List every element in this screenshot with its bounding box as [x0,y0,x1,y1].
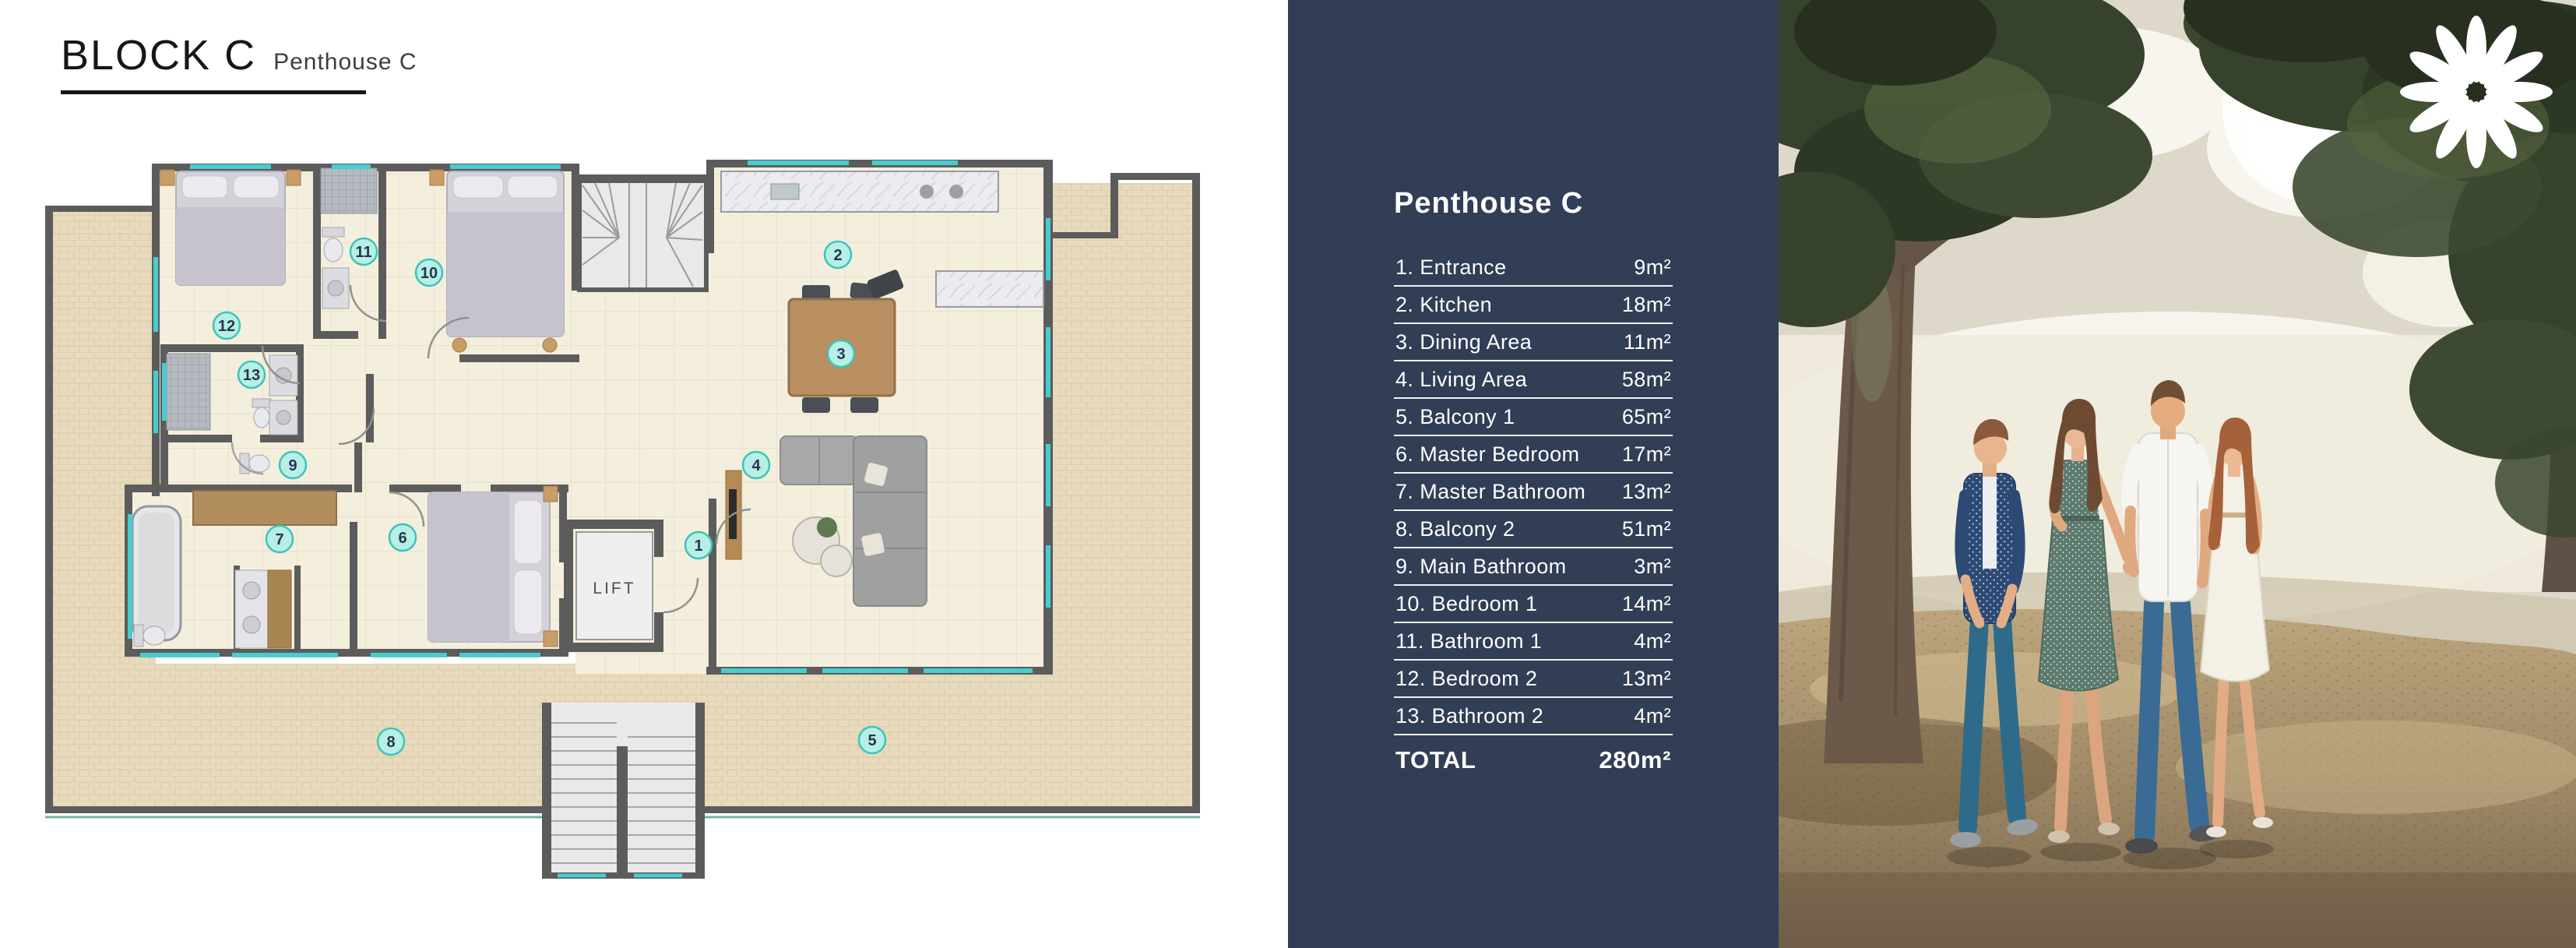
room-area: 17m² [1622,442,1671,467]
room-row: 1. Entrance9m² [1394,249,1673,287]
room-label: 13. Bathroom 2 [1395,704,1543,728]
room-row: 4. Living Area58m² [1394,361,1673,399]
room-label: 4. Living Area [1395,368,1527,392]
room-row: 12. Bedroom 213m² [1394,661,1673,698]
room-label: 10. Bedroom 1 [1395,592,1537,616]
room-row: 7. Master Bathroom13m² [1394,474,1673,511]
room-area: 3m² [1634,555,1671,579]
stairs-bottom [542,703,705,879]
room-label: 7. Master Bathroom [1395,480,1585,504]
brochure-page: BLOCK CPenthouse C [0,0,2576,948]
room-label: 3. Dining Area [1395,330,1532,354]
room-row: 11. Bathroom 14m² [1394,623,1673,661]
marker-11: 11 [355,244,371,261]
room-area: 13m² [1622,480,1671,504]
room-area: 9m² [1634,256,1671,280]
room-row: 13. Bathroom 24m² [1394,698,1673,735]
room-area: 4m² [1634,629,1671,654]
room-label: 1. Entrance [1395,256,1507,280]
room-row: 6. Master Bedroom17m² [1394,436,1673,474]
marker-1: 1 [694,537,702,555]
total-area: 280m² [1599,746,1671,774]
marker-5: 5 [867,732,876,749]
marker-7: 7 [275,531,283,548]
floor-plan: LIFT [23,140,1223,888]
room-label: 2. Kitchen [1395,293,1492,317]
room-label: 11. Bathroom 1 [1395,629,1542,654]
room-label: 9. Main Bathroom [1395,555,1567,579]
marker-8: 8 [386,734,395,751]
room-area: 51m² [1622,517,1671,541]
family-photo-art [1779,0,2576,948]
room-area: 11m² [1624,330,1671,354]
marker-9: 9 [288,457,297,474]
total-label: TOTAL [1395,746,1476,774]
room-row: 5. Balcony 165m² [1394,399,1673,436]
block-subtitle: Penthouse C [273,49,417,75]
stairs-top [579,181,706,290]
room-row: 10. Bedroom 114m² [1394,586,1673,623]
room-list: 1. Entrance9m² 2. Kitchen18m² 3. Dining … [1394,249,1673,774]
lift-label: LIFT [593,580,635,597]
marker-6: 6 [398,530,406,547]
marker-13: 13 [243,367,260,384]
room-row: 2. Kitchen18m² [1394,287,1673,324]
marker-2: 2 [833,247,842,264]
room-label: 5. Balcony 1 [1395,405,1515,429]
room-row: 3. Dining Area11m² [1394,324,1673,361]
marker-10: 10 [421,265,438,282]
room-label: 12. Bedroom 2 [1395,667,1537,691]
room-area: 58m² [1622,368,1671,392]
marker-4: 4 [751,457,761,474]
room-row: 8. Balcony 251m² [1394,511,1673,548]
page-title: BLOCK CPenthouse C [61,31,417,79]
room-schedule-panel: Penthouse C 1. Entrance9m² 2. Kitchen18m… [1288,0,1779,948]
total-row: TOTAL280m² [1394,735,1673,774]
room-area: 65m² [1622,405,1671,429]
room-area: 13m² [1622,667,1671,691]
room-area: 18m² [1622,293,1671,317]
room-row: 9. Main Bathroom3m² [1394,548,1673,586]
room-label: 6. Master Bedroom [1395,442,1579,467]
title-underline [61,90,366,94]
room-area: 14m² [1622,592,1671,616]
marker-3: 3 [836,346,845,363]
panel-heading: Penthouse C [1394,187,1583,220]
room-area: 4m² [1634,704,1671,728]
floor-plan-drawing: LIFT [23,140,1223,888]
block-title: BLOCK C [61,32,256,79]
marker-12: 12 [218,318,235,335]
family-photo [1779,0,2576,948]
room-label: 8. Balcony 2 [1395,517,1515,541]
